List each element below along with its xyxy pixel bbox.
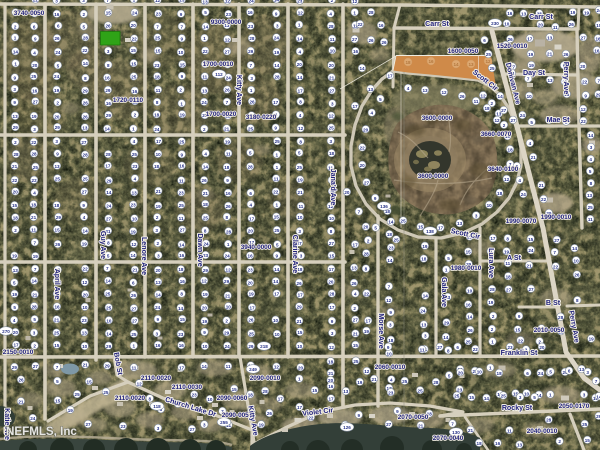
svg-text:14: 14 (588, 133, 594, 138)
svg-text:24: 24 (597, 8, 600, 13)
svg-text:18: 18 (13, 215, 19, 220)
svg-text:22: 22 (357, 22, 363, 27)
svg-text:126: 126 (343, 425, 351, 430)
svg-text:22: 22 (31, 140, 37, 145)
svg-text:15: 15 (106, 11, 112, 16)
svg-text:20: 20 (329, 63, 335, 68)
svg-text:17: 17 (274, 292, 280, 297)
svg-text:10: 10 (226, 304, 232, 309)
svg-text:26: 26 (569, 22, 575, 27)
svg-text:4: 4 (133, 139, 136, 144)
svg-text:10: 10 (178, 50, 184, 55)
svg-text:Day St: Day St (523, 69, 546, 77)
svg-text:5: 5 (374, 226, 377, 231)
svg-text:3: 3 (156, 331, 159, 336)
svg-text:20: 20 (363, 225, 369, 230)
svg-text:14: 14 (105, 127, 111, 132)
svg-text:14: 14 (203, 25, 209, 30)
svg-text:22: 22 (541, 197, 547, 202)
svg-text:8: 8 (330, 229, 333, 234)
svg-text:28: 28 (558, 315, 564, 320)
svg-text:25: 25 (394, 238, 400, 243)
svg-text:4: 4 (371, 111, 374, 116)
svg-text:18: 18 (154, 112, 160, 117)
svg-text:2010-0050: 2010-0050 (534, 327, 565, 334)
svg-text:27: 27 (106, 217, 112, 222)
svg-text:21: 21 (418, 423, 424, 428)
svg-text:9: 9 (389, 310, 392, 315)
svg-text:9: 9 (82, 203, 85, 208)
svg-text:2: 2 (179, 88, 182, 93)
svg-text:15: 15 (180, 62, 186, 67)
svg-text:26: 26 (55, 242, 61, 247)
svg-text:3: 3 (300, 254, 303, 259)
svg-text:13: 13 (368, 87, 374, 92)
svg-text:9: 9 (374, 196, 377, 201)
svg-text:9: 9 (358, 413, 361, 418)
svg-text:16: 16 (179, 164, 185, 169)
svg-text:1990-0070: 1990-0070 (506, 218, 537, 225)
svg-text:17: 17 (387, 74, 393, 79)
svg-text:19: 19 (131, 229, 137, 234)
svg-text:5: 5 (549, 370, 552, 375)
svg-text:11: 11 (588, 217, 593, 222)
svg-text:22: 22 (82, 48, 88, 53)
svg-text:5: 5 (33, 317, 36, 322)
svg-text:5: 5 (57, 63, 60, 68)
svg-text:2: 2 (492, 314, 495, 319)
svg-text:1: 1 (14, 61, 17, 66)
svg-text:2110-0020: 2110-0020 (141, 375, 172, 382)
svg-text:18: 18 (421, 257, 427, 262)
svg-text:18: 18 (477, 441, 483, 446)
svg-text:17: 17 (527, 37, 533, 42)
svg-text:22: 22 (473, 347, 479, 352)
svg-text:14: 14 (297, 75, 303, 80)
svg-text:15: 15 (297, 330, 303, 335)
svg-text:22: 22 (273, 190, 279, 195)
svg-text:8: 8 (226, 215, 229, 220)
svg-text:25: 25 (329, 126, 335, 131)
svg-text:3: 3 (331, 102, 334, 107)
svg-text:3: 3 (475, 213, 478, 218)
svg-text:3600-0000: 3600-0000 (422, 115, 453, 122)
svg-text:17: 17 (329, 267, 335, 272)
svg-text:9: 9 (180, 12, 183, 17)
svg-text:24: 24 (106, 204, 112, 209)
svg-text:9: 9 (226, 178, 229, 183)
svg-text:5: 5 (379, 97, 382, 102)
svg-text:8: 8 (506, 236, 509, 241)
svg-text:25: 25 (486, 52, 492, 57)
svg-text:14: 14 (106, 190, 112, 195)
svg-text:2: 2 (503, 123, 506, 128)
svg-text:25: 25 (249, 331, 255, 336)
svg-text:6: 6 (249, 191, 252, 196)
svg-text:2: 2 (134, 113, 137, 118)
svg-text:13: 13 (13, 114, 19, 119)
svg-text:14: 14 (484, 396, 490, 401)
svg-text:4: 4 (329, 12, 332, 17)
svg-text:25: 25 (582, 422, 588, 427)
svg-text:1: 1 (445, 268, 448, 273)
svg-text:13: 13 (587, 193, 593, 198)
svg-text:3660-0070: 3660-0070 (481, 131, 512, 138)
svg-text:3600-0000: 3600-0000 (418, 173, 449, 180)
svg-text:16: 16 (507, 11, 513, 16)
svg-text:14: 14 (297, 36, 303, 41)
svg-text:22: 22 (32, 178, 38, 183)
svg-text:12: 12 (504, 177, 510, 182)
svg-text:13: 13 (132, 190, 138, 195)
svg-text:26: 26 (368, 38, 374, 43)
svg-text:13: 13 (343, 389, 349, 394)
svg-text:27: 27 (131, 306, 137, 311)
svg-text:3: 3 (250, 76, 253, 81)
svg-text:6: 6 (57, 24, 60, 29)
svg-text:14: 14 (387, 258, 393, 263)
svg-text:12: 12 (82, 280, 88, 285)
svg-text:21: 21 (12, 164, 18, 169)
svg-text:2150-0010: 2150-0010 (3, 349, 34, 356)
svg-text:Clarine Ave: Clarine Ave (291, 235, 299, 274)
svg-text:3: 3 (298, 229, 301, 234)
svg-text:16: 16 (132, 89, 138, 94)
svg-text:26: 26 (105, 24, 111, 29)
svg-text:25: 25 (501, 394, 507, 399)
svg-text:17: 17 (13, 343, 19, 348)
svg-text:8: 8 (180, 292, 183, 297)
svg-text:20: 20 (131, 23, 137, 28)
svg-text:7: 7 (34, 240, 37, 245)
svg-text:19: 19 (12, 254, 18, 259)
svg-text:7: 7 (156, 25, 159, 30)
svg-text:23: 23 (226, 12, 232, 17)
svg-text:14: 14 (498, 94, 504, 99)
svg-text:218: 218 (260, 344, 268, 349)
svg-text:7: 7 (358, 210, 361, 215)
svg-text:18: 18 (203, 202, 209, 207)
svg-text:2: 2 (14, 24, 17, 29)
svg-text:22: 22 (203, 49, 209, 54)
svg-text:2: 2 (491, 327, 494, 332)
svg-text:5: 5 (13, 281, 16, 286)
svg-text:26: 26 (297, 281, 303, 286)
svg-text:6: 6 (568, 369, 571, 374)
svg-text:21: 21 (225, 294, 231, 299)
svg-text:29: 29 (224, 330, 230, 335)
svg-text:Perry Ave: Perry Ave (562, 62, 570, 95)
svg-text:2: 2 (56, 100, 59, 105)
svg-text:15: 15 (155, 49, 161, 54)
svg-text:29: 29 (105, 364, 111, 369)
svg-text:17: 17 (352, 104, 358, 109)
svg-text:12: 12 (364, 369, 370, 374)
svg-text:17: 17 (105, 164, 111, 169)
svg-text:21: 21 (353, 332, 359, 337)
svg-text:18: 18 (387, 232, 393, 237)
svg-text:15: 15 (329, 253, 335, 258)
svg-text:14: 14 (423, 294, 429, 299)
svg-text:23: 23 (388, 390, 394, 395)
svg-text:2110-0020: 2110-0020 (115, 395, 146, 402)
svg-text:25: 25 (55, 176, 61, 181)
svg-text:19: 19 (488, 300, 494, 305)
svg-text:1: 1 (133, 0, 136, 2)
svg-text:Mae St: Mae St (547, 116, 571, 124)
svg-text:10: 10 (467, 289, 473, 294)
svg-text:21: 21 (468, 428, 474, 433)
svg-text:19: 19 (203, 292, 209, 297)
svg-text:28: 28 (83, 35, 89, 40)
svg-text:27: 27 (82, 190, 88, 195)
svg-text:13: 13 (156, 280, 162, 285)
svg-text:3940-0000: 3940-0000 (241, 244, 272, 251)
svg-text:10: 10 (297, 344, 303, 349)
svg-text:27: 27 (510, 118, 516, 123)
svg-text:8: 8 (156, 100, 159, 105)
svg-text:11: 11 (31, 227, 36, 232)
svg-text:22: 22 (364, 291, 370, 296)
svg-text:13: 13 (82, 330, 88, 335)
svg-text:10: 10 (524, 391, 530, 396)
svg-text:29: 29 (106, 344, 112, 349)
svg-text:27: 27 (329, 241, 335, 246)
svg-text:15: 15 (585, 438, 591, 443)
svg-text:27: 27 (33, 99, 39, 104)
svg-text:7: 7 (56, 365, 59, 370)
svg-text:14: 14 (596, 394, 600, 399)
svg-text:7: 7 (226, 100, 229, 105)
svg-text:270: 270 (2, 329, 10, 334)
svg-text:5: 5 (83, 25, 86, 30)
svg-text:17: 17 (366, 319, 372, 324)
svg-text:19: 19 (528, 52, 534, 57)
svg-text:5: 5 (298, 151, 301, 156)
svg-text:1600-0050: 1600-0050 (448, 48, 479, 55)
svg-text:18: 18 (508, 147, 514, 152)
svg-text:Morse Ave: Morse Ave (377, 313, 385, 348)
svg-text:136: 136 (380, 204, 388, 209)
svg-text:16: 16 (155, 343, 161, 348)
svg-text:25: 25 (105, 291, 111, 296)
svg-text:11: 11 (330, 37, 335, 42)
svg-text:18: 18 (484, 106, 490, 111)
svg-text:21: 21 (54, 318, 60, 323)
svg-text:3: 3 (55, 139, 58, 144)
svg-text:20: 20 (298, 365, 304, 370)
svg-text:18: 18 (248, 393, 254, 398)
svg-text:19: 19 (357, 380, 363, 385)
svg-text:18: 18 (405, 60, 411, 65)
svg-text:14: 14 (453, 62, 459, 67)
svg-text:20: 20 (13, 330, 19, 335)
svg-text:27: 27 (352, 37, 358, 42)
svg-text:18: 18 (155, 74, 161, 79)
svg-text:13: 13 (352, 266, 358, 271)
svg-text:25: 25 (401, 219, 407, 224)
svg-text:1: 1 (276, 153, 279, 158)
svg-text:26: 26 (225, 88, 231, 93)
svg-text:Jana'd Ave: Jana'd Ave (329, 169, 337, 206)
svg-text:5: 5 (530, 120, 533, 125)
svg-text:12: 12 (131, 242, 137, 247)
svg-text:28: 28 (83, 153, 89, 158)
svg-text:10: 10 (82, 305, 88, 310)
svg-text:14: 14 (106, 279, 112, 284)
svg-text:3: 3 (155, 228, 158, 233)
svg-text:20: 20 (202, 306, 208, 311)
svg-text:13: 13 (517, 443, 523, 448)
svg-text:8: 8 (299, 139, 302, 144)
svg-text:26: 26 (202, 178, 208, 183)
svg-text:Carr St: Carr St (425, 20, 449, 28)
svg-text:14: 14 (203, 165, 209, 170)
svg-text:21: 21 (83, 363, 89, 368)
svg-text:29: 29 (105, 88, 111, 93)
svg-text:12: 12 (202, 279, 208, 284)
svg-text:16: 16 (180, 279, 186, 284)
svg-text:10: 10 (574, 258, 580, 263)
svg-text:138: 138 (426, 229, 434, 234)
svg-text:3: 3 (33, 331, 36, 336)
svg-text:4: 4 (529, 141, 532, 146)
svg-text:22: 22 (33, 0, 39, 3)
svg-text:26: 26 (563, 52, 569, 57)
svg-text:15: 15 (131, 48, 137, 53)
svg-text:25: 25 (466, 339, 472, 344)
svg-text:12: 12 (226, 267, 232, 272)
svg-text:10: 10 (202, 344, 208, 349)
svg-text:19: 19 (274, 50, 280, 55)
svg-text:8: 8 (447, 348, 450, 353)
svg-text:23: 23 (179, 191, 185, 196)
svg-text:25: 25 (179, 203, 185, 208)
svg-text:Gala Ave: Gala Ave (440, 277, 448, 307)
svg-text:12: 12 (298, 126, 304, 131)
svg-text:15: 15 (180, 317, 186, 322)
svg-text:16: 16 (378, 23, 384, 28)
svg-text:3740-0050: 3740-0050 (14, 10, 45, 17)
svg-text:20: 20 (83, 292, 89, 297)
svg-text:2: 2 (225, 319, 228, 324)
svg-text:28: 28 (106, 152, 112, 157)
svg-text:23: 23 (248, 268, 254, 273)
svg-text:2060-0010: 2060-0010 (375, 364, 406, 371)
svg-text:14: 14 (13, 49, 19, 54)
svg-text:16: 16 (428, 59, 434, 64)
svg-text:13: 13 (13, 268, 19, 273)
svg-text:11: 11 (507, 428, 512, 433)
svg-text:6: 6 (132, 281, 135, 286)
svg-text:22: 22 (360, 146, 366, 151)
svg-text:20: 20 (344, 190, 350, 195)
svg-text:19: 19 (570, 10, 576, 15)
svg-text:2: 2 (353, 306, 356, 311)
svg-text:14: 14 (388, 220, 394, 225)
svg-text:20: 20 (248, 281, 254, 286)
svg-text:29: 29 (106, 179, 112, 184)
svg-text:118: 118 (153, 404, 161, 409)
svg-text:9: 9 (518, 314, 521, 319)
svg-text:12: 12 (581, 107, 587, 112)
svg-text:29: 29 (444, 320, 450, 325)
svg-text:18: 18 (224, 165, 230, 170)
svg-text:15: 15 (353, 343, 359, 348)
svg-text:A St: A St (507, 254, 522, 262)
svg-text:23: 23 (179, 0, 185, 3)
svg-text:6: 6 (33, 24, 36, 29)
svg-text:1720-0110: 1720-0110 (113, 97, 144, 104)
svg-text:25: 25 (83, 177, 89, 182)
svg-text:27: 27 (581, 35, 587, 40)
svg-text:26: 26 (249, 99, 255, 104)
svg-text:21: 21 (156, 189, 162, 194)
svg-text:12: 12 (494, 118, 500, 123)
svg-text:1: 1 (133, 344, 136, 349)
svg-text:249: 249 (249, 367, 257, 372)
svg-text:10: 10 (297, 215, 303, 220)
svg-text:17: 17 (328, 397, 334, 402)
svg-text:29: 29 (596, 414, 600, 419)
svg-text:4: 4 (33, 191, 36, 196)
svg-text:21: 21 (329, 75, 335, 80)
svg-text:7: 7 (34, 267, 37, 272)
svg-text:Guy Ave: Guy Ave (99, 231, 107, 259)
svg-text:11: 11 (420, 347, 425, 352)
svg-text:23: 23 (297, 0, 303, 4)
svg-text:4: 4 (299, 113, 302, 118)
svg-text:10: 10 (504, 22, 510, 27)
svg-text:28: 28 (31, 152, 37, 157)
svg-text:29: 29 (224, 279, 230, 284)
svg-text:9: 9 (34, 36, 37, 41)
svg-text:24: 24 (538, 371, 544, 376)
svg-text:26: 26 (131, 293, 137, 298)
svg-text:4: 4 (33, 50, 36, 55)
svg-text:19: 19 (12, 292, 18, 297)
svg-text:9300-0000: 9300-0000 (211, 19, 242, 26)
svg-text:12: 12 (441, 90, 447, 95)
svg-text:25: 25 (489, 66, 495, 71)
svg-text:19: 19 (82, 242, 88, 247)
svg-text:16: 16 (179, 343, 185, 348)
svg-text:5: 5 (276, 242, 279, 247)
svg-text:7: 7 (106, 0, 109, 3)
svg-text:19: 19 (584, 10, 590, 15)
svg-text:2050-0170: 2050-0170 (559, 403, 590, 410)
svg-text:14: 14 (359, 66, 365, 71)
svg-text:5: 5 (204, 10, 207, 15)
svg-text:22: 22 (83, 267, 89, 272)
svg-text:24: 24 (249, 0, 255, 4)
svg-text:4: 4 (83, 215, 86, 220)
svg-text:10: 10 (156, 152, 162, 157)
svg-text:11: 11 (179, 216, 184, 221)
svg-text:25: 25 (248, 126, 254, 131)
svg-text:2: 2 (33, 344, 36, 349)
svg-text:16: 16 (54, 12, 60, 17)
svg-text:4: 4 (299, 50, 302, 55)
svg-text:25: 25 (31, 74, 37, 79)
svg-text:12: 12 (329, 345, 335, 350)
svg-text:21: 21 (18, 399, 24, 404)
svg-text:26: 26 (54, 36, 60, 41)
svg-text:1990-0010: 1990-0010 (541, 214, 572, 221)
svg-text:14: 14 (274, 63, 280, 68)
svg-text:14: 14 (202, 364, 208, 369)
svg-text:19: 19 (364, 329, 370, 334)
